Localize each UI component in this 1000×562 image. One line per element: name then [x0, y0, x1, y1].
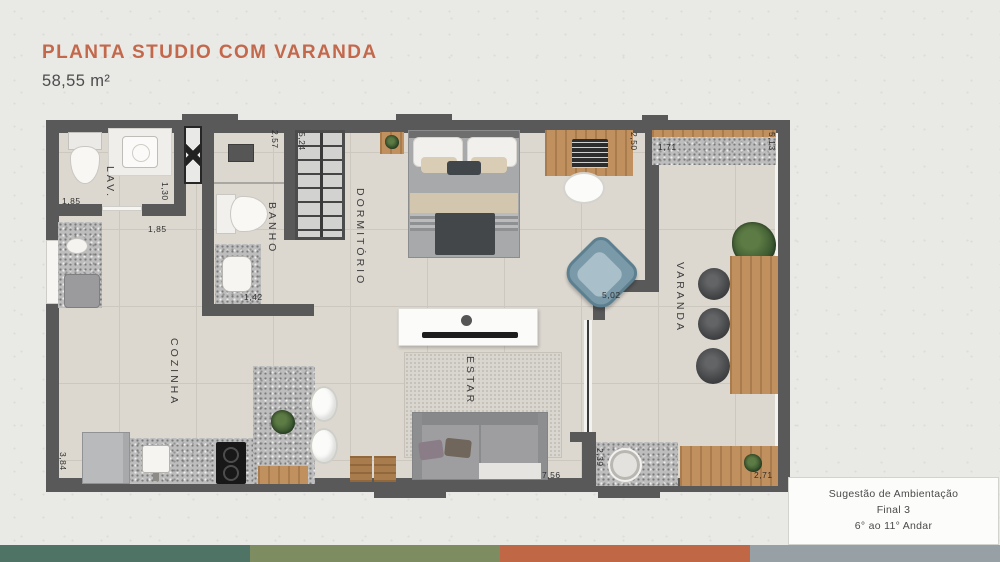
entry-door-icon	[184, 126, 202, 184]
dim-banho-width: 1,42	[244, 292, 263, 302]
room-label-banho: BANHO	[266, 202, 278, 266]
bar-stool-1	[698, 268, 730, 300]
burner-bottom	[223, 465, 239, 481]
side-table-plant	[385, 135, 399, 149]
caption-line-3: 6° ao 11° Andar	[789, 519, 998, 535]
room-label-cozinha: COZINHA	[168, 338, 180, 406]
nook-chair	[64, 274, 100, 308]
stool-white-top	[310, 386, 338, 422]
varanda-counter-wood-edge	[652, 130, 776, 137]
varanda-glass-door	[584, 320, 592, 434]
dim-varanda-counter: 1,71	[658, 142, 677, 152]
dim-cozinha-depth: 3,84	[58, 452, 68, 471]
dim-desk-wall: 2,50	[629, 132, 639, 151]
wall-lav-bottom-right	[142, 204, 174, 216]
room-label-estar: ESTAR	[464, 356, 476, 416]
footer-color-bar	[0, 545, 1000, 562]
banho-sink	[222, 256, 252, 292]
dim-banho-depth: 2,57	[270, 130, 280, 149]
stool-white-bottom	[310, 428, 338, 464]
wall-varanda-lower-h	[570, 432, 596, 442]
wall-top-bump-center	[396, 114, 452, 121]
bed	[408, 130, 520, 258]
page-title: PLANTA STUDIO COM VARANDA	[42, 42, 377, 64]
kitchen-faucet	[153, 473, 159, 481]
footer-segment-orange	[500, 545, 750, 562]
sofa-back	[413, 413, 547, 425]
footer-segment-olive	[250, 545, 500, 562]
peninsula-wood-base	[258, 466, 308, 484]
dim-varanda-sink: 2,39	[595, 448, 605, 467]
wall-right	[778, 122, 790, 488]
wall-bottom-bump-left	[374, 492, 446, 498]
sofa-cushion-split	[479, 425, 481, 465]
dim-lav-depth: 1,30	[160, 182, 170, 201]
nook-dish	[66, 238, 88, 254]
tv-mount	[461, 315, 472, 326]
desk-chair	[563, 172, 605, 204]
varanda-bench	[680, 446, 778, 486]
side-cube-right	[374, 456, 396, 482]
burner-top	[223, 447, 239, 463]
peninsula-plant	[271, 410, 295, 434]
room-label-lav: LAV.	[104, 166, 116, 210]
bed-runner	[435, 213, 495, 255]
footer-segment-gray	[750, 545, 1000, 562]
caption-line-1: Sugestão de Ambientação	[789, 487, 998, 503]
fridge	[82, 432, 130, 484]
varanda-bar-table	[730, 256, 778, 394]
dim-varanda-door: 5,02	[602, 290, 621, 300]
footer-segment-green	[0, 545, 250, 562]
sofa	[412, 412, 548, 480]
area-label: 58,55 m²	[42, 72, 110, 91]
wall-banho-right	[284, 128, 295, 240]
wall-top-bump-right	[642, 115, 668, 121]
dim-estar-width: 7,56	[542, 470, 561, 480]
caption-box: Sugestão de Ambientação Final 3 6° ao 11…	[788, 477, 999, 545]
sofa-pillow-brown	[444, 438, 472, 459]
wall-banho-bottom	[202, 304, 314, 316]
sofa-chaise	[479, 463, 541, 479]
dim-hall-width: 1,85	[148, 224, 167, 234]
wall-banho-left	[202, 128, 214, 316]
bed-blanket-band	[410, 193, 518, 213]
caption-line-2: Final 3	[789, 503, 998, 519]
cooktop	[216, 442, 246, 484]
dim-lav-width: 1,85	[62, 196, 81, 206]
dim-varanda-bench: 2,71	[754, 470, 773, 480]
tv-console	[398, 308, 538, 346]
bar-stool-3	[696, 348, 730, 384]
laptop-icon	[572, 139, 608, 168]
kitchen-sink	[142, 445, 170, 473]
varanda-sink	[608, 448, 642, 482]
dim-closet-depth: 5,24	[297, 132, 307, 151]
room-label-varanda: VARANDA	[674, 262, 686, 358]
floor-plan: LAV. BANHO DORMITÓRIO COZINHA ESTAR VARA…	[44, 112, 792, 502]
wall-top-bump-entry	[182, 114, 238, 121]
dim-varanda-depth: 5,13	[767, 132, 777, 151]
shower-head-icon	[228, 144, 254, 162]
tv-icon	[422, 332, 518, 338]
sofa-pillow-mauve	[418, 439, 444, 460]
bed-throw-pillow	[447, 161, 481, 175]
room-label-dormitorio: DORMITÓRIO	[354, 188, 366, 298]
bar-stool-2	[698, 308, 730, 340]
wall-bottom-bump-right	[598, 492, 660, 498]
side-cube-left	[350, 456, 372, 482]
page-background: PLANTA STUDIO COM VARANDA 58,55 m²	[0, 0, 1000, 562]
lav-sink-drain	[132, 144, 150, 162]
shower-divider	[214, 182, 284, 184]
